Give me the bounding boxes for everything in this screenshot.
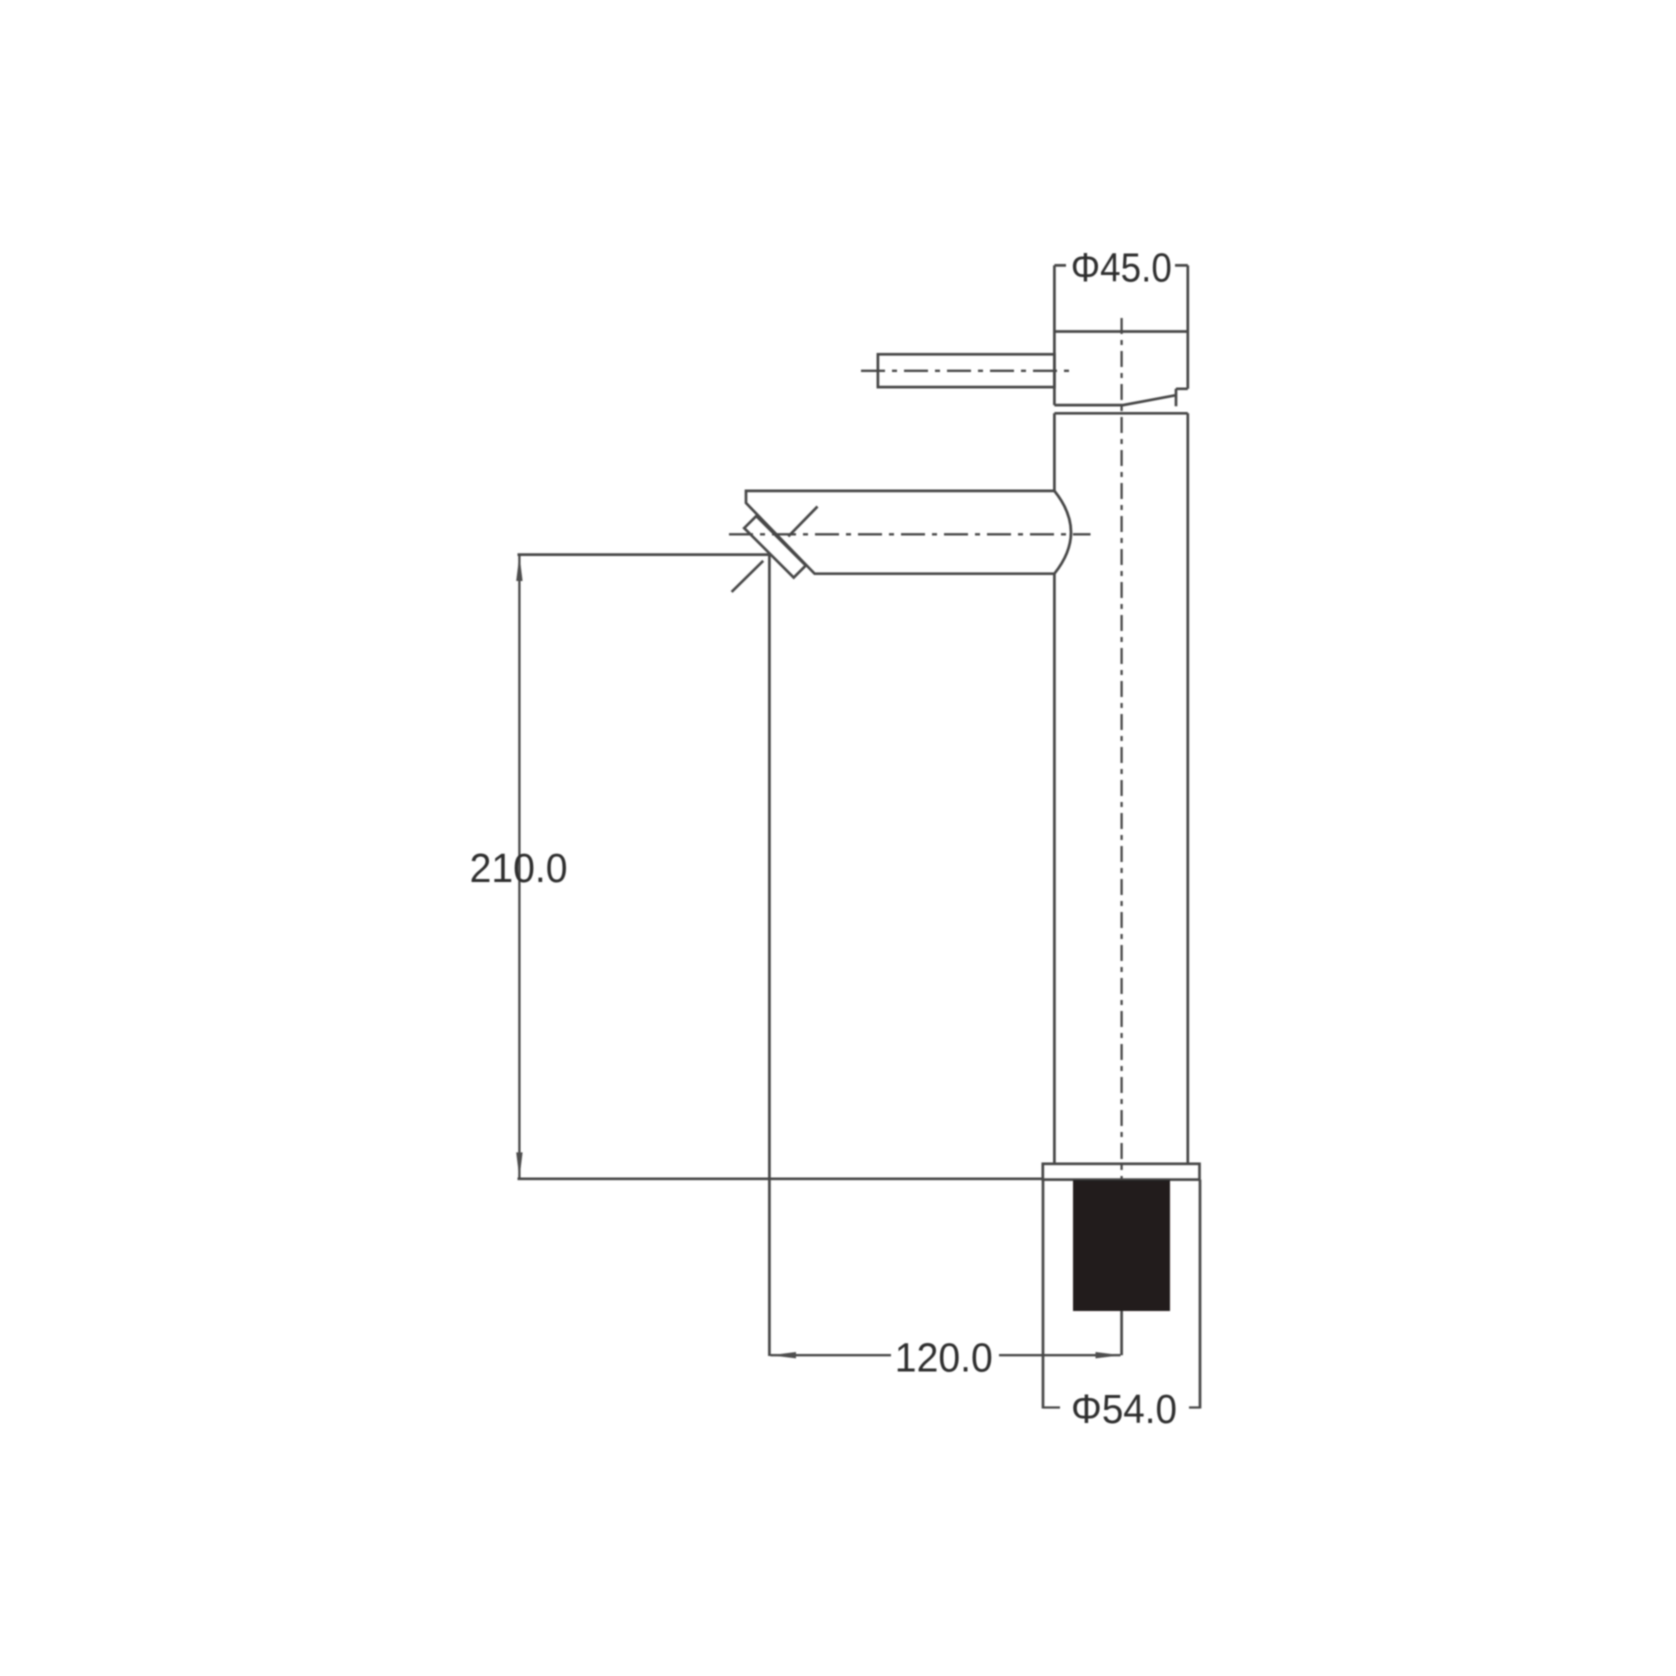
- svg-text:Φ54.0: Φ54.0: [1071, 1386, 1177, 1432]
- svg-text:210.0: 210.0: [470, 845, 568, 891]
- svg-text:120.0: 120.0: [895, 1335, 993, 1381]
- svg-text:Φ45.0: Φ45.0: [1071, 245, 1172, 291]
